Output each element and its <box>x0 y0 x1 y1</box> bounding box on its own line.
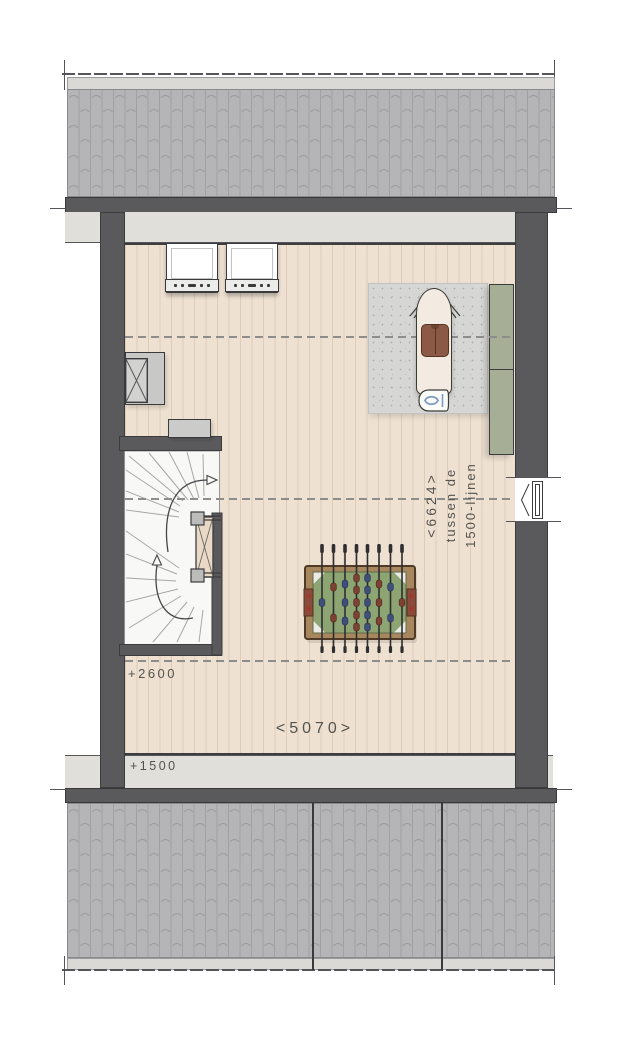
stair-wall-bottom <box>120 645 222 656</box>
height-dimension-value: <6624> <box>421 430 441 580</box>
eaves-tick <box>548 789 572 790</box>
machine-control-panel <box>165 279 219 292</box>
eaves-tick <box>548 208 572 209</box>
corner-tick <box>64 60 65 90</box>
roof-eaves-band-top <box>65 197 557 213</box>
machine-control-panel <box>225 279 279 292</box>
party-wall-line <box>441 803 443 970</box>
height-dimension-note-2: 1500-lijnen <box>461 430 481 580</box>
roof-tiles-top <box>67 89 555 197</box>
machine-lid <box>171 248 213 279</box>
storage-cabinet <box>489 284 514 455</box>
foosball-table <box>300 542 422 658</box>
roof-ridge-line-top <box>62 73 557 75</box>
roof-eaves-band-bottom <box>65 788 557 803</box>
corner-tick <box>554 956 555 985</box>
party-wall-line <box>312 803 314 970</box>
window-swing-icon <box>519 482 531 518</box>
washing-machine-2 <box>226 243 278 293</box>
corner-tick <box>64 956 65 985</box>
iron <box>417 387 451 414</box>
machine-lid <box>231 248 273 279</box>
height-dimension-note-1: tussen de <box>441 430 461 580</box>
newel-post <box>191 569 204 582</box>
level-label-1500: +1500 <box>130 759 178 773</box>
washing-machine-1 <box>166 243 218 293</box>
window-frame <box>532 481 543 519</box>
stair-top-cabinet <box>168 419 211 438</box>
newel-post <box>191 512 204 525</box>
shaft-cross-icon <box>125 358 148 403</box>
staircase <box>119 436 223 657</box>
eaves-tick <box>50 208 67 209</box>
width-dimension-label: <5070> <box>252 720 378 738</box>
level-label-2600: +2600 <box>128 666 177 681</box>
knee-wall-strip-top <box>65 212 548 243</box>
roof-tiles-bottom <box>67 803 555 958</box>
window-extension-line <box>506 521 561 522</box>
height-dash-line <box>125 336 515 338</box>
goal-left <box>304 589 313 616</box>
window-extension-line <box>506 477 561 478</box>
height-dash-line <box>125 660 515 662</box>
folded-garment <box>421 324 449 357</box>
eaves-tick <box>50 789 67 790</box>
height-dimension-label: <6624> tussen de 1500-lijnen <box>421 430 481 580</box>
goal-right <box>407 589 416 616</box>
stair-wall-top <box>120 437 222 451</box>
floor-plan: +2600 +1500 <5070> <6624> tussen de 1500… <box>0 0 633 1050</box>
roof-ridge-line-bottom <box>62 969 557 971</box>
